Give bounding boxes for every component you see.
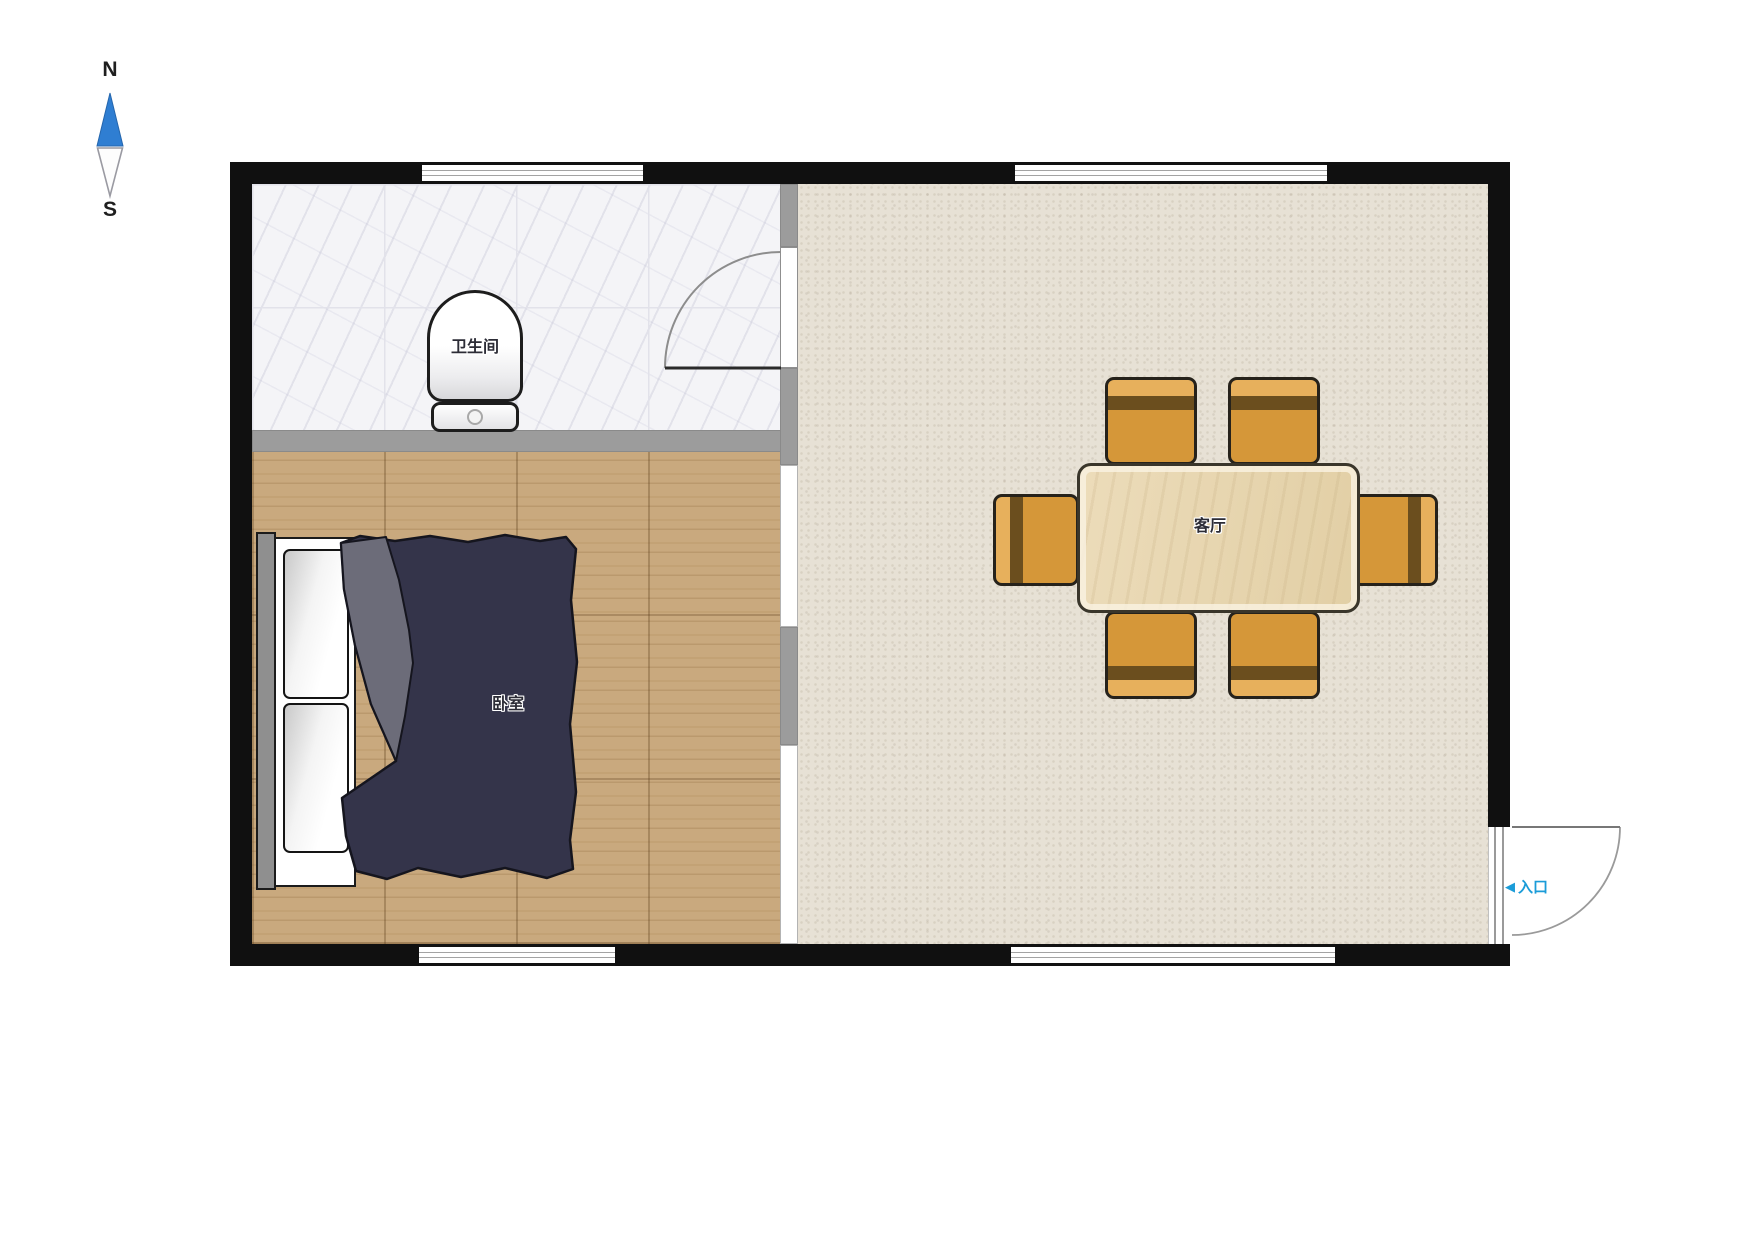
dining-table bbox=[1077, 463, 1360, 613]
living-room-label: 客厅 bbox=[1130, 512, 1290, 536]
interior-wall-segment bbox=[780, 368, 798, 465]
floor-plan-canvas: N S bbox=[0, 0, 1754, 1240]
wall-east bbox=[1488, 162, 1510, 827]
bathroom-label: 卫生间 bbox=[415, 333, 535, 357]
entrance-arrow-icon: ◀ bbox=[1505, 880, 1515, 893]
pillow bbox=[283, 703, 349, 853]
dining-chair bbox=[1352, 494, 1438, 586]
interior-wall-bathroom-bedroom bbox=[252, 430, 798, 452]
dining-chair bbox=[993, 494, 1079, 586]
window-bathroom bbox=[422, 162, 643, 184]
bathroom-door-opening bbox=[780, 247, 798, 368]
interior-wall-segment bbox=[780, 627, 798, 745]
compass-north-needle bbox=[97, 93, 123, 146]
bed-headboard bbox=[256, 532, 276, 890]
entrance-label-text: 入口 bbox=[1518, 876, 1548, 897]
entrance-label: ◀ 入口 bbox=[1505, 876, 1548, 897]
compass-north-label: N bbox=[80, 58, 140, 82]
interior-wall-opening bbox=[780, 745, 798, 944]
window-living-south bbox=[1011, 944, 1335, 966]
interior-wall-segment bbox=[780, 184, 798, 247]
compass-needle-icon bbox=[80, 86, 140, 200]
bedroom-label: 卧室 bbox=[448, 690, 568, 714]
wall-west bbox=[230, 162, 252, 966]
compass-south-needle bbox=[98, 148, 123, 196]
dining-chair bbox=[1228, 611, 1320, 699]
dining-chair bbox=[1228, 377, 1320, 465]
interior-wall-opening bbox=[780, 465, 798, 627]
toilet-flush-button bbox=[467, 409, 483, 425]
dining-chair bbox=[1105, 611, 1197, 699]
dining-chair bbox=[1105, 377, 1197, 465]
pillow bbox=[283, 549, 349, 699]
compass-south-label: S bbox=[80, 198, 140, 222]
window-living-north bbox=[1015, 162, 1327, 184]
window-bedroom bbox=[419, 944, 615, 966]
